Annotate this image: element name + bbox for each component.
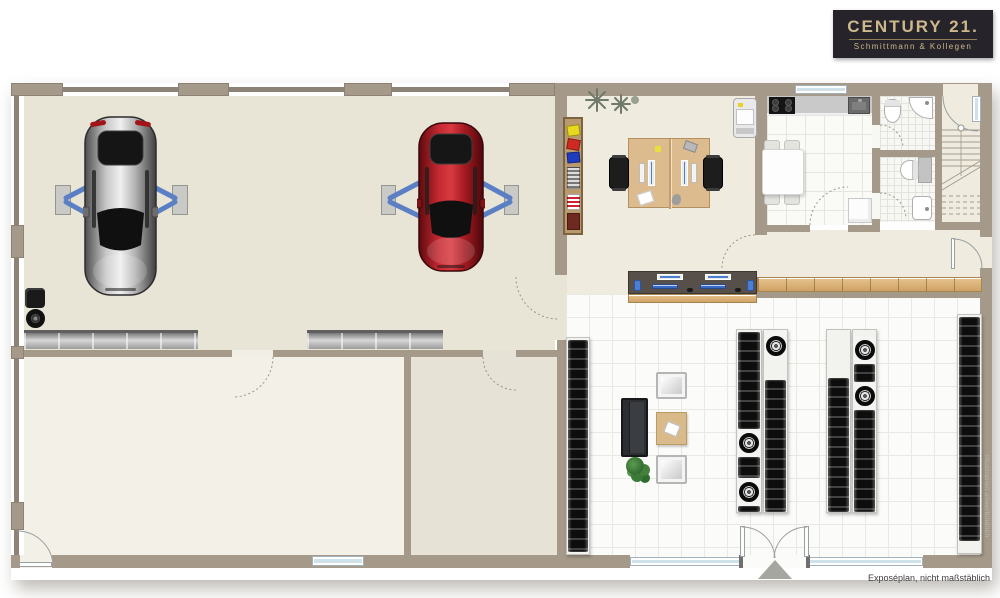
door-arc (722, 235, 755, 268)
door-arc (516, 277, 558, 319)
floor-plan-page: CENTURY 21 CENTURY 21. Schmittmann & Kol… (0, 0, 1000, 598)
logo-title: CENTURY 21. (847, 18, 979, 35)
exterior-door-arc (17, 531, 53, 567)
stair-newel-icon (958, 125, 964, 131)
storefront-door-arc (774, 527, 807, 558)
watermark-credit: Illustration unverbindlich (983, 455, 990, 538)
plan-symbols-overlay (0, 0, 1000, 598)
door-arc (810, 187, 848, 225)
door-arc (483, 357, 516, 390)
logo-subtitle: Schmittmann & Kollegen (854, 43, 972, 51)
door-arc (880, 193, 906, 219)
watermark: CENTURY 21 (0, 0, 441, 60)
decor-dot-icon (631, 96, 639, 104)
entrance-marker-icon (758, 560, 792, 579)
back-door-arc (953, 239, 982, 268)
stairs-icon (942, 128, 982, 214)
logo-divider (849, 39, 977, 40)
door-arc (233, 357, 273, 397)
plan-caption: Exposéplan, nicht maßstäblich (868, 573, 990, 583)
door-arc (880, 125, 903, 148)
star-decoration-icon (586, 89, 630, 113)
storefront-door-arc (742, 527, 775, 558)
century21-logo: CENTURY 21. Schmittmann & Kollegen (833, 10, 993, 58)
